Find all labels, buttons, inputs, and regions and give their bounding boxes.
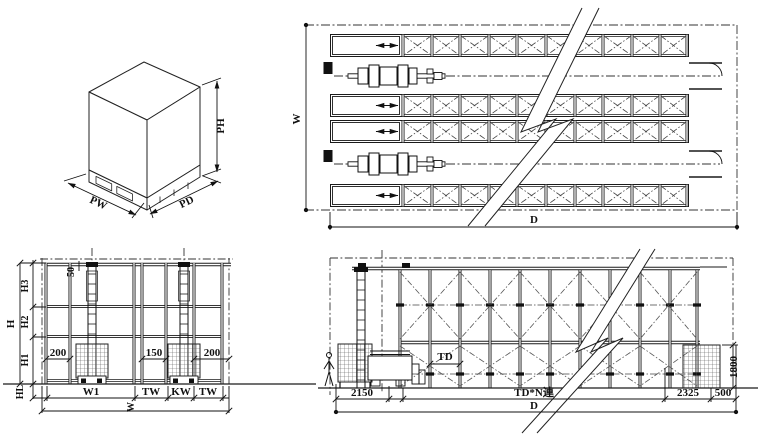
label-gap-right: 200 xyxy=(204,347,221,359)
label-rack-zone: TD*N連 xyxy=(514,385,555,399)
operator-figure xyxy=(324,353,334,387)
pallet-station-in xyxy=(338,344,372,388)
asrs-technical-drawing: PH PW PD W D xyxy=(0,0,760,436)
label-ph: PH xyxy=(215,118,227,134)
label-td: TD xyxy=(437,351,452,363)
label-clearance-top: 50 xyxy=(66,267,77,277)
label-pw: PW xyxy=(88,194,109,212)
label-h-total: H xyxy=(5,319,17,328)
label-station-height: 1800 xyxy=(728,356,740,379)
label-plan-depth: D xyxy=(530,214,538,226)
stacker-crane-side xyxy=(354,267,425,388)
drawing-sheet: PH PW PD W D xyxy=(0,0,760,436)
label-w1: W1 xyxy=(83,386,100,398)
label-h1: H1 xyxy=(20,354,31,367)
label-tw-left: TW xyxy=(142,386,160,398)
side-elevation-view: TD 2150 TD*N連 2325 500 1800 D xyxy=(318,249,758,433)
label-rear-zone: 2325 xyxy=(677,387,700,399)
label-side-depth: D xyxy=(530,400,538,412)
label-tw-right: TW xyxy=(199,386,217,398)
label-pd: PD xyxy=(177,194,195,211)
label-h3: H3 xyxy=(20,280,31,293)
front-elevation-view: 50 H H3 H2 H1 HL 200 150 200 W1 TW KW TW… xyxy=(3,248,316,414)
label-hl: HL xyxy=(15,384,26,399)
label-end-zone: 500 xyxy=(715,387,732,399)
label-gap-mid: 150 xyxy=(146,347,163,359)
pallet-station-out xyxy=(683,345,720,388)
label-h2: H2 xyxy=(20,316,31,329)
plan-view: W D xyxy=(291,8,739,230)
unit-load-isometric-view: PH PW PD xyxy=(64,62,227,218)
stacker-crane-front xyxy=(76,262,108,384)
label-gap-left: 200 xyxy=(50,347,67,359)
label-w-total: W xyxy=(126,402,137,412)
label-front-zone: 2150 xyxy=(351,387,374,399)
label-kw: KW xyxy=(171,386,191,398)
label-plan-width: W xyxy=(291,114,303,125)
front-rack-structure xyxy=(45,263,231,384)
